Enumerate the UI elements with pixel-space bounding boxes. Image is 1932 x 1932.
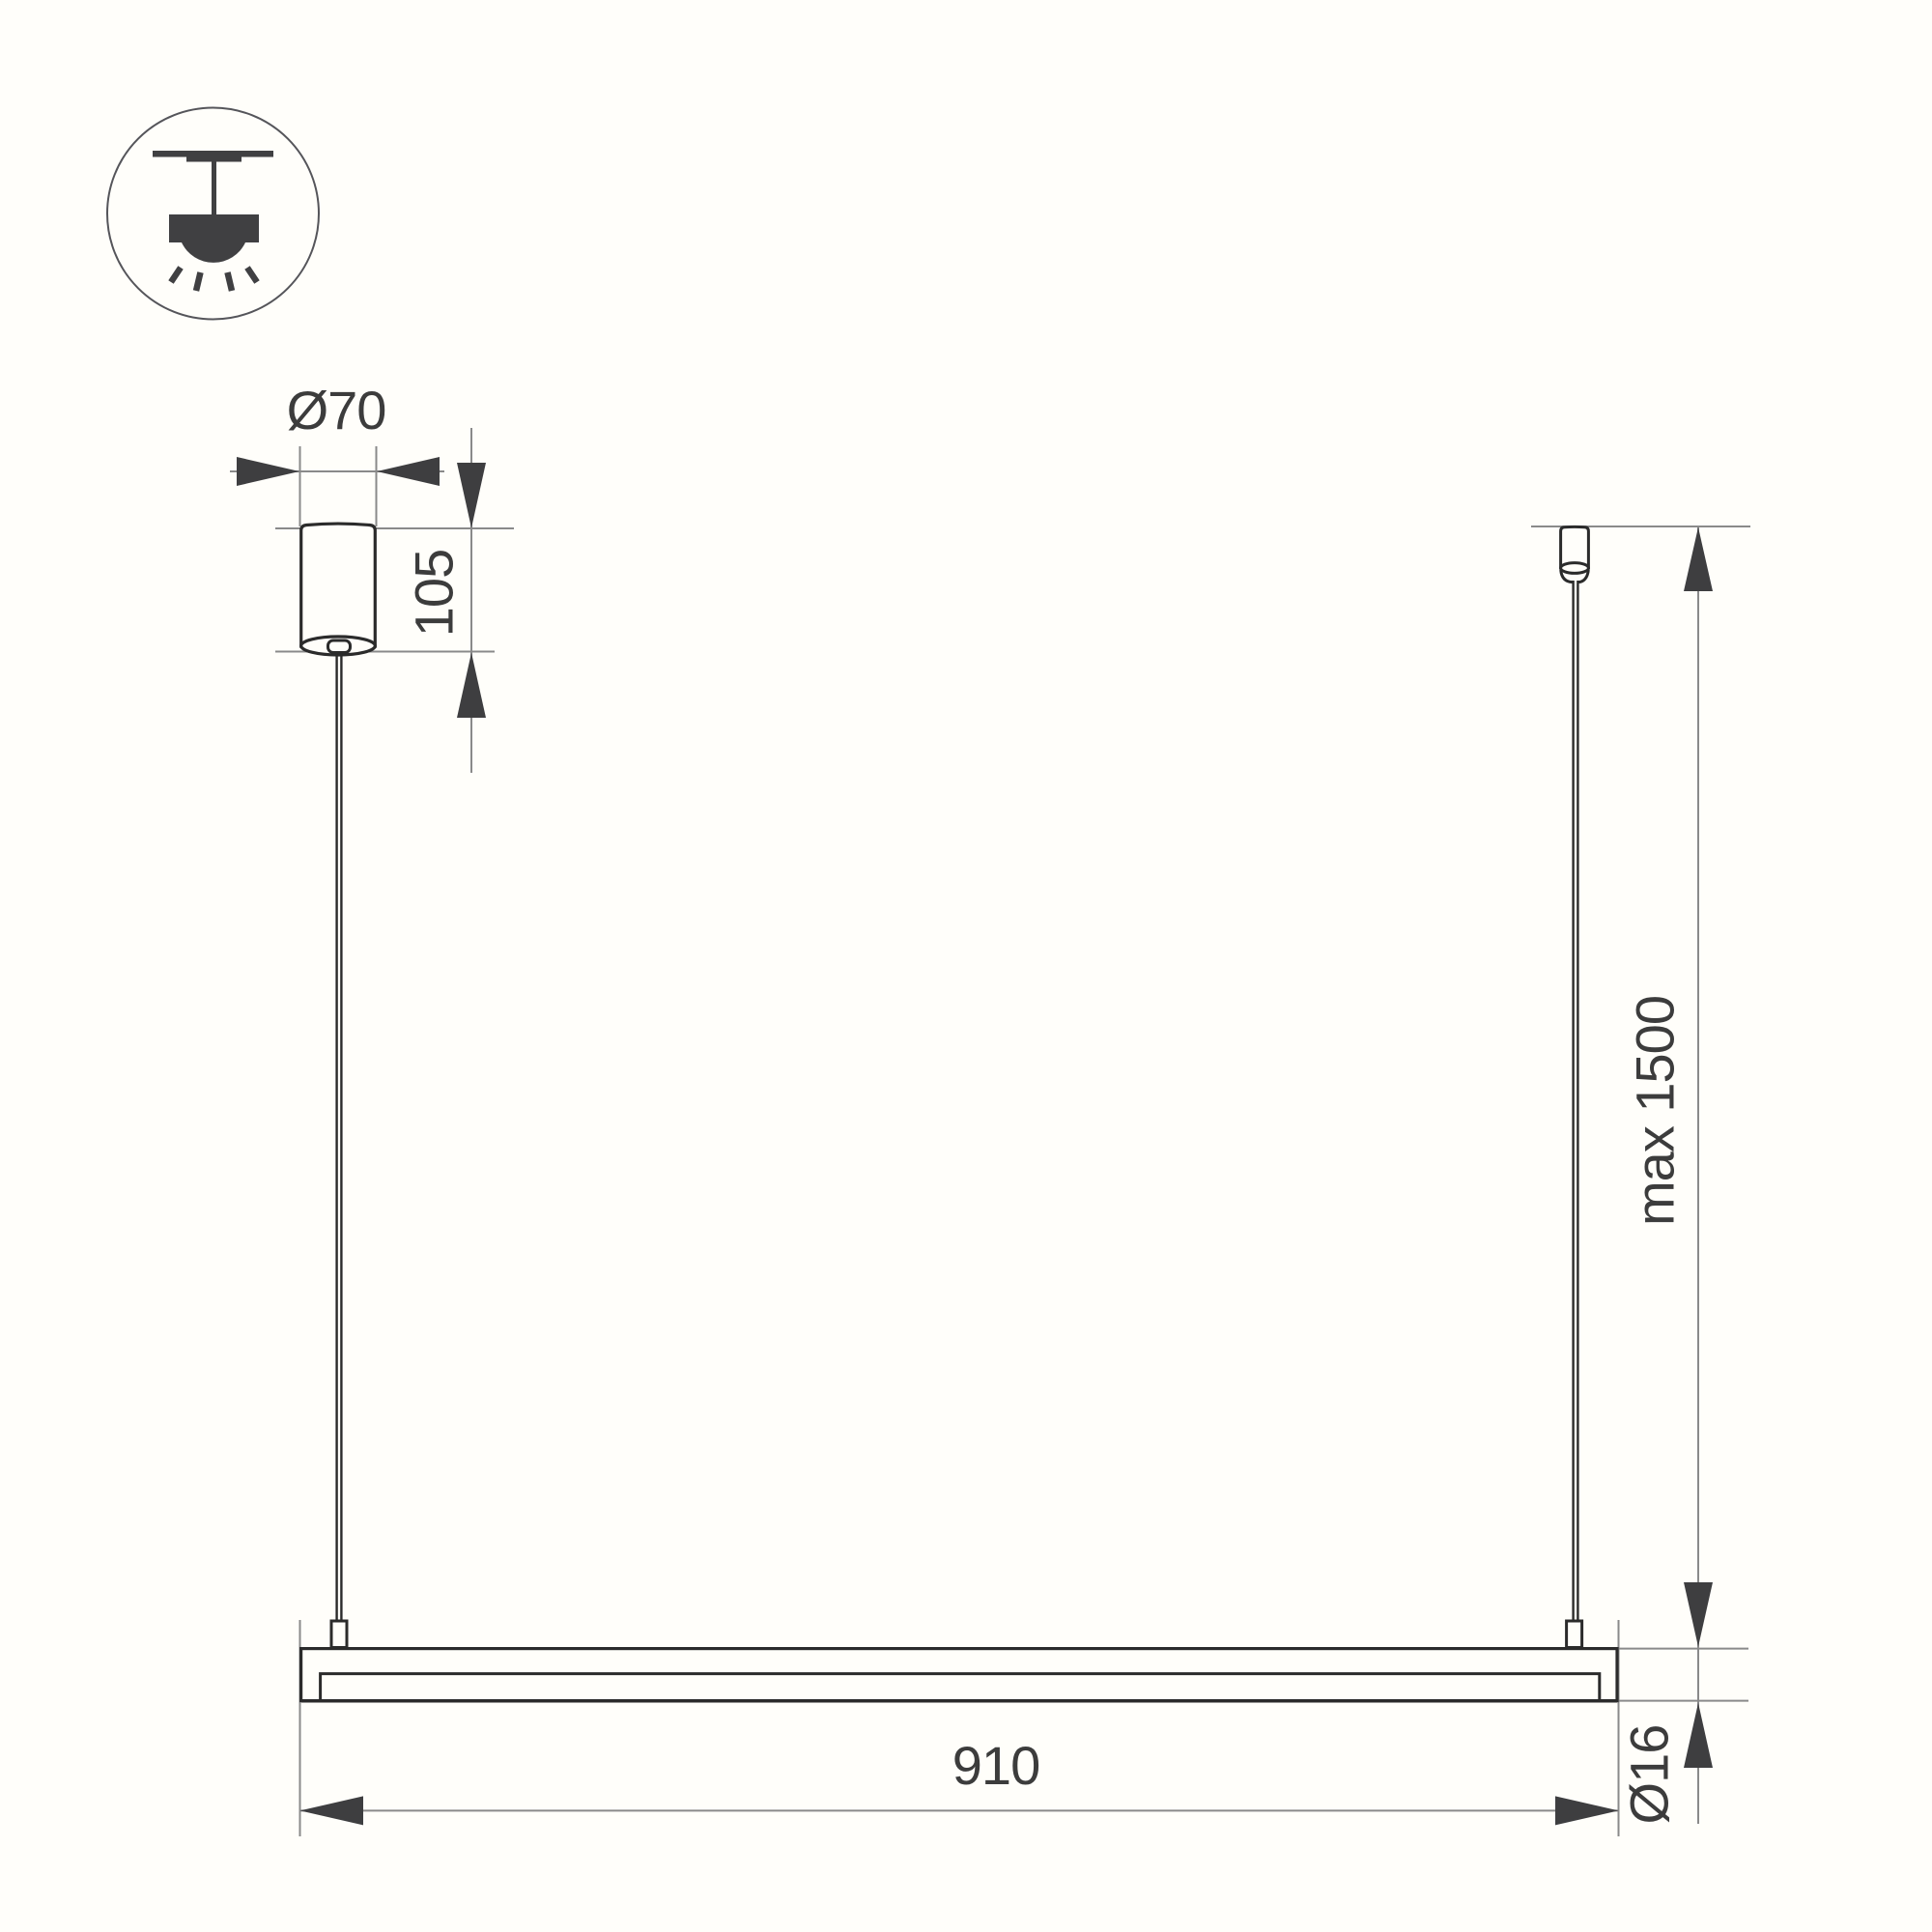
canopy-body — [301, 524, 376, 646]
light-ray-icon-4 — [247, 268, 257, 282]
cord-connector-right — [1567, 1621, 1582, 1648]
canopy-height-label: 105 — [404, 550, 465, 637]
pendant-stem — [212, 160, 216, 215]
tube-diameter-label: Ø16 — [1619, 1725, 1680, 1825]
cord-connector-left — [331, 1621, 347, 1648]
light-ray-icon-1 — [171, 268, 181, 282]
ceiling-pendant-light-icon — [107, 108, 319, 320]
lamp-body — [169, 214, 259, 242]
ceiling-fixing-ellipse — [1561, 563, 1589, 574]
max-suspension-label: max 1500 — [1625, 996, 1686, 1226]
fixture-length-label: 910 — [952, 1735, 1039, 1796]
lamp-shade-dome — [182, 242, 245, 263]
left-canopy-assembly — [301, 524, 376, 1621]
arrow-down-icon — [1684, 1582, 1713, 1647]
tube-diameter-dimension: Ø16 — [1618, 1649, 1748, 1825]
arrow-right-icon — [1555, 1796, 1619, 1825]
linear-light-bar — [301, 1621, 1617, 1701]
light-ray-icon-3 — [228, 272, 233, 291]
arrow-up-icon — [457, 653, 486, 718]
arrow-down-icon — [457, 463, 486, 528]
arrow-up-icon — [1684, 527, 1713, 591]
suspension-height-dimension: max 1500 — [1625, 527, 1713, 1824]
canopy-diameter-dimension: Ø70 — [230, 380, 444, 526]
arrow-right-icon — [377, 457, 440, 486]
arrow-left-icon — [300, 1796, 364, 1825]
cord-gland — [328, 640, 351, 653]
canopy-diameter-label: Ø70 — [287, 380, 386, 440]
arrow-left-icon — [237, 457, 299, 486]
technical-drawing-canvas: Ø70 105 max 1500 Ø16 — [0, 0, 1932, 1932]
pendant-light-dimension-drawing: Ø70 105 max 1500 Ø16 — [0, 0, 1932, 1932]
arrow-up-icon — [1684, 1703, 1713, 1768]
light-ray-icon-2 — [196, 272, 201, 291]
